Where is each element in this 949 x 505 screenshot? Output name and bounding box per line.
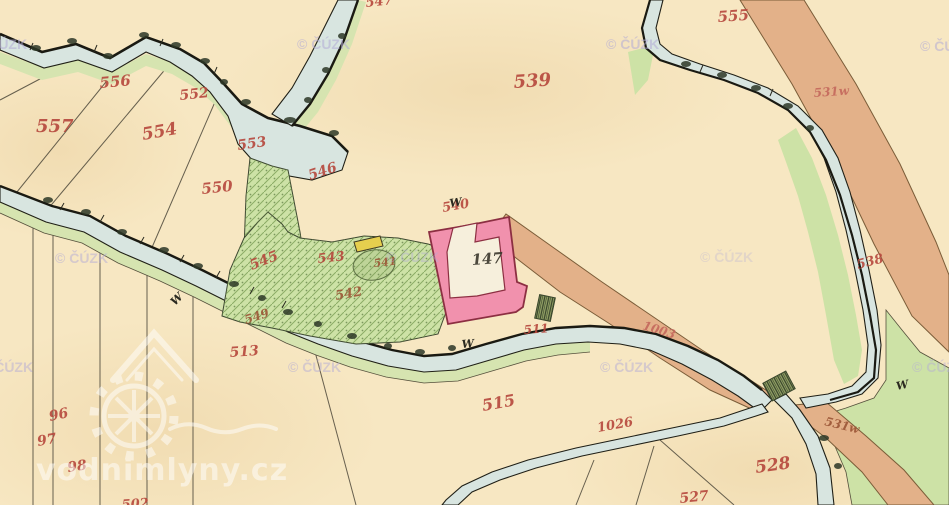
cuzk-watermark: © ČÚZK (288, 358, 341, 375)
parcel-label: 552 (179, 85, 210, 104)
parcel-label: 539 (513, 69, 552, 93)
parcel-label: 556 (99, 71, 132, 92)
parcel-label: 543 (317, 249, 346, 267)
cuzk-watermark: © ČÚZK (0, 358, 33, 375)
cuzk-watermark: © ČÚZK (297, 35, 350, 52)
cuzk-watermark: © ČÚZK (920, 37, 949, 54)
parcel-label: 502 (121, 496, 149, 505)
parcel-label: 527 (679, 488, 710, 505)
parcel-label: 531w (813, 84, 850, 100)
parcel-label: 557 (36, 116, 74, 137)
cuzk-watermark: © ČÚZK (912, 358, 949, 375)
cuzk-watermark: © ČÚZK (700, 248, 753, 265)
cadastral-map-canvas[interactable]: 5565575525545535505555395465455435425415… (0, 0, 949, 505)
cuzk-watermark: © ČÚZK (55, 249, 108, 266)
cuzk-watermark: © ČÚZK (606, 35, 659, 52)
parcel-label: 555 (717, 6, 749, 26)
cuzk-watermark: © ČÚZK (386, 248, 439, 265)
cuzk-watermark: © ČÚZK (600, 358, 653, 375)
parcel-label: 550 (201, 177, 235, 198)
parcel-label: 513 (229, 343, 260, 361)
cuzk-watermark: © ČÚZK (0, 35, 27, 52)
parcel-label: 511 (523, 321, 549, 337)
cadastral-map-svg: 5565575525545535505555395465455435425415… (0, 0, 949, 505)
parcel-label: 97 (36, 431, 58, 450)
parcel-label: 147 (471, 249, 504, 269)
logo-text: vodnimlyny.cz (36, 453, 288, 488)
